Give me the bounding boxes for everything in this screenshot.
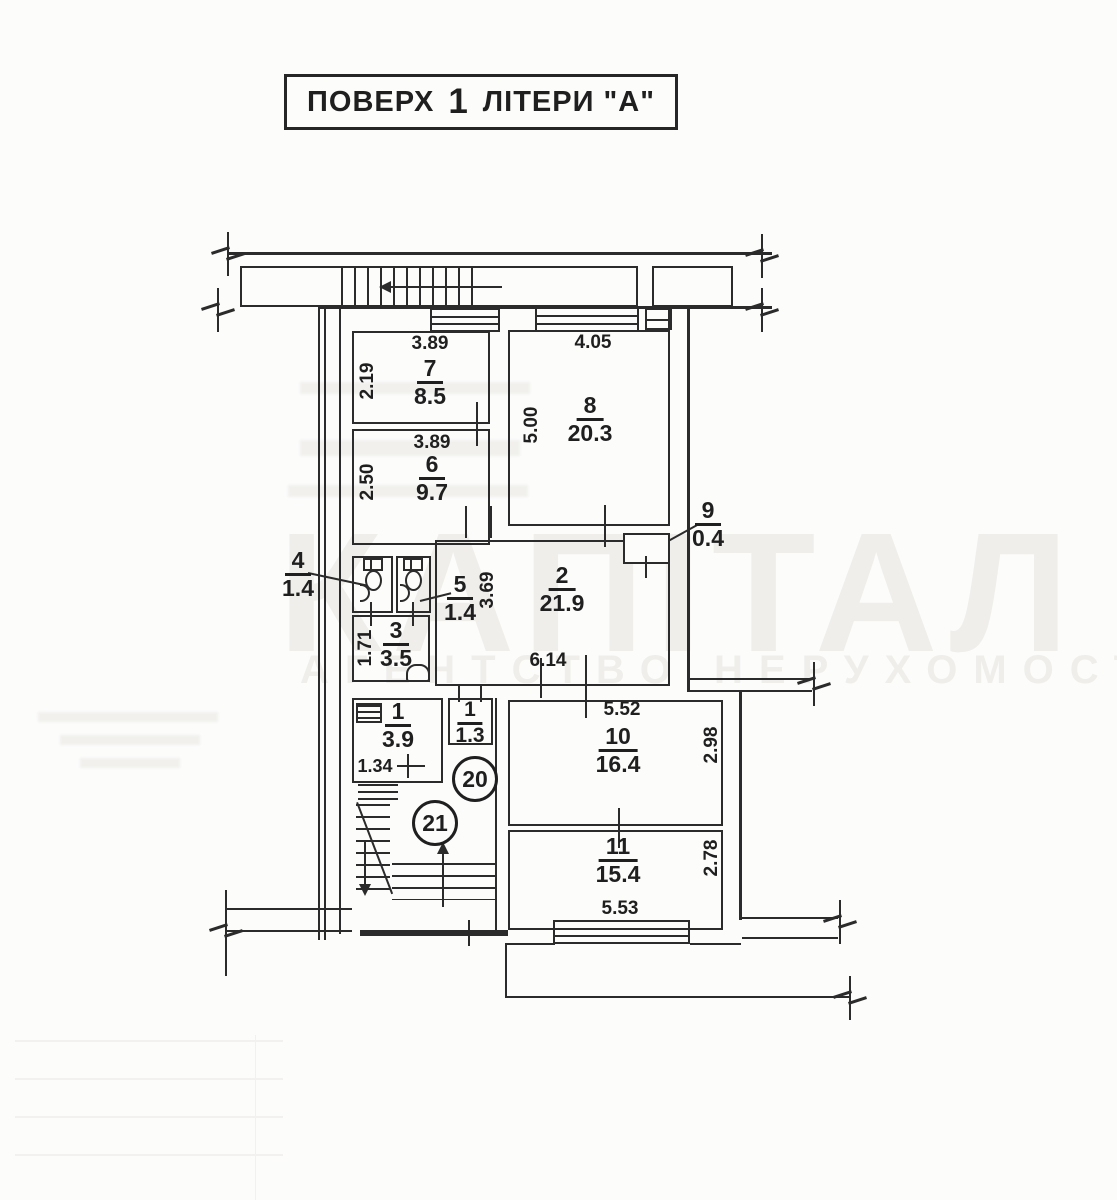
room-number-area-label: 3 3.5 xyxy=(380,618,412,671)
room-number-area-label: 4 1.4 xyxy=(282,548,314,601)
floor-plan-drawing: ПОВЕРХ 1 ЛІТЕРИ "А" 3.89 2.19 xyxy=(0,0,1117,1200)
window xyxy=(535,306,639,332)
wall xyxy=(495,698,497,932)
wall xyxy=(690,690,812,692)
door-tick xyxy=(468,920,470,946)
room-number-area-label: 1 1.3 xyxy=(455,699,484,747)
wall xyxy=(690,678,812,680)
room-number: 1 xyxy=(457,699,483,725)
dimension-label: 5.52 xyxy=(604,699,641,721)
room-number: 11 xyxy=(599,834,637,862)
stair-direction-line xyxy=(442,852,444,907)
door-tick xyxy=(645,556,647,578)
room-number: 7 xyxy=(417,356,444,384)
apartment-20-badge: 20 xyxy=(452,756,498,802)
dimension-label: 3.69 xyxy=(477,572,499,609)
title-letter: ЛІТЕРИ "А" xyxy=(483,86,655,119)
landing-right xyxy=(652,266,733,307)
apartment-21-badge: 21 xyxy=(412,800,458,846)
dimension-label: 1.71 xyxy=(355,630,377,667)
room-number-area-label: 11 15.4 xyxy=(596,834,641,887)
wall xyxy=(225,908,352,910)
wall xyxy=(318,306,320,940)
room-number: 5 xyxy=(447,572,474,600)
dimension-label: 6.14 xyxy=(530,650,567,672)
dimension-label: 5.53 xyxy=(602,898,639,920)
room-number-area-label: 1 3.9 xyxy=(382,699,414,752)
wall xyxy=(742,937,838,939)
dimension-tick-line xyxy=(397,765,425,767)
room-number: 6 xyxy=(419,452,446,480)
room-area: 0.4 xyxy=(692,526,724,551)
room-number: 9 xyxy=(695,498,722,526)
room-number: 2 xyxy=(549,563,576,591)
room-area: 16.4 xyxy=(596,752,641,777)
door-tick xyxy=(490,506,492,538)
wall xyxy=(687,306,690,692)
door-tick xyxy=(476,402,478,446)
dimension-label: 3.89 xyxy=(412,333,449,355)
plan-title: ПОВЕРХ 1 ЛІТЕРИ "А" xyxy=(284,74,678,130)
wall-break-icon xyxy=(212,890,242,976)
stair-direction-line xyxy=(390,286,502,288)
dimension-tick xyxy=(407,754,409,778)
room-number-area-label: 2 21.9 xyxy=(540,563,585,616)
wall xyxy=(225,930,352,932)
down-arrow-icon xyxy=(359,884,371,896)
room-area: 9.7 xyxy=(416,480,448,505)
room-area: 3.9 xyxy=(382,727,414,752)
wall-break-icon xyxy=(204,288,234,332)
room-number-area-label: 8 20.3 xyxy=(568,393,613,446)
wall-break-icon xyxy=(836,976,866,1020)
dimension-label: 4.05 xyxy=(575,332,612,354)
wall-break-icon xyxy=(800,662,830,706)
balcony-wall xyxy=(505,943,507,998)
door-tick xyxy=(465,506,467,538)
wall-break-icon xyxy=(826,900,856,944)
title-floor-number: 1 xyxy=(448,82,468,122)
entrance-sill xyxy=(360,930,508,936)
wall-break-icon xyxy=(214,232,244,276)
room-number-area-label: 6 9.7 xyxy=(416,452,448,505)
room-number-area-label: 9 0.4 xyxy=(692,498,724,551)
room-number-area-label: 10 16.4 xyxy=(596,724,641,777)
wall xyxy=(228,252,772,255)
dimension-label: 1.34 xyxy=(357,756,392,777)
room-number: 1 xyxy=(385,699,412,727)
room-number-area-label: 7 8.5 xyxy=(414,356,446,409)
room-area: 1.4 xyxy=(444,600,476,625)
dimension-label: 5.00 xyxy=(521,407,543,444)
room-area: 15.4 xyxy=(596,862,641,887)
room-area: 8.5 xyxy=(414,384,446,409)
window xyxy=(645,308,672,330)
dimension-label: 2.50 xyxy=(357,464,379,501)
scanned-floor-plan-page: КАПІТАЛ АГЕНТСТВО НЕРУХОМОСТІ ПОВЕРХ 1 Л… xyxy=(0,0,1117,1200)
window xyxy=(553,920,690,944)
balcony-wall xyxy=(507,943,555,945)
room-area: 20.3 xyxy=(568,421,613,446)
room-number-area-label: 5 1.4 xyxy=(444,572,476,625)
dimension-label: 2.19 xyxy=(357,363,379,400)
room-area: 1.3 xyxy=(455,725,484,748)
dimension-label: 2.78 xyxy=(701,840,723,877)
wall xyxy=(324,306,326,940)
wall-break-icon xyxy=(748,234,778,278)
stair-direction-line xyxy=(364,842,366,886)
wall-break-icon xyxy=(748,288,778,332)
room-number: 3 xyxy=(383,618,410,646)
room-number: 8 xyxy=(577,393,604,421)
room-number: 4 xyxy=(285,548,312,576)
window xyxy=(430,308,500,332)
wall xyxy=(339,306,341,934)
toilet-icon xyxy=(402,558,424,596)
room-area: 1.4 xyxy=(282,576,314,601)
wall xyxy=(739,692,742,920)
room-area: 21.9 xyxy=(540,591,585,616)
title-floor-word: ПОВЕРХ xyxy=(307,86,434,119)
balcony-wall xyxy=(690,943,741,945)
dimension-label: 2.98 xyxy=(701,727,723,764)
electric-panel-icon xyxy=(356,703,382,723)
door-tick xyxy=(585,690,587,718)
room-number: 10 xyxy=(598,724,638,752)
toilet-icon xyxy=(362,558,384,596)
left-arrow-icon xyxy=(379,281,391,293)
room-area: 3.5 xyxy=(380,646,412,671)
stairs xyxy=(358,784,398,804)
balcony-wall xyxy=(505,996,850,998)
